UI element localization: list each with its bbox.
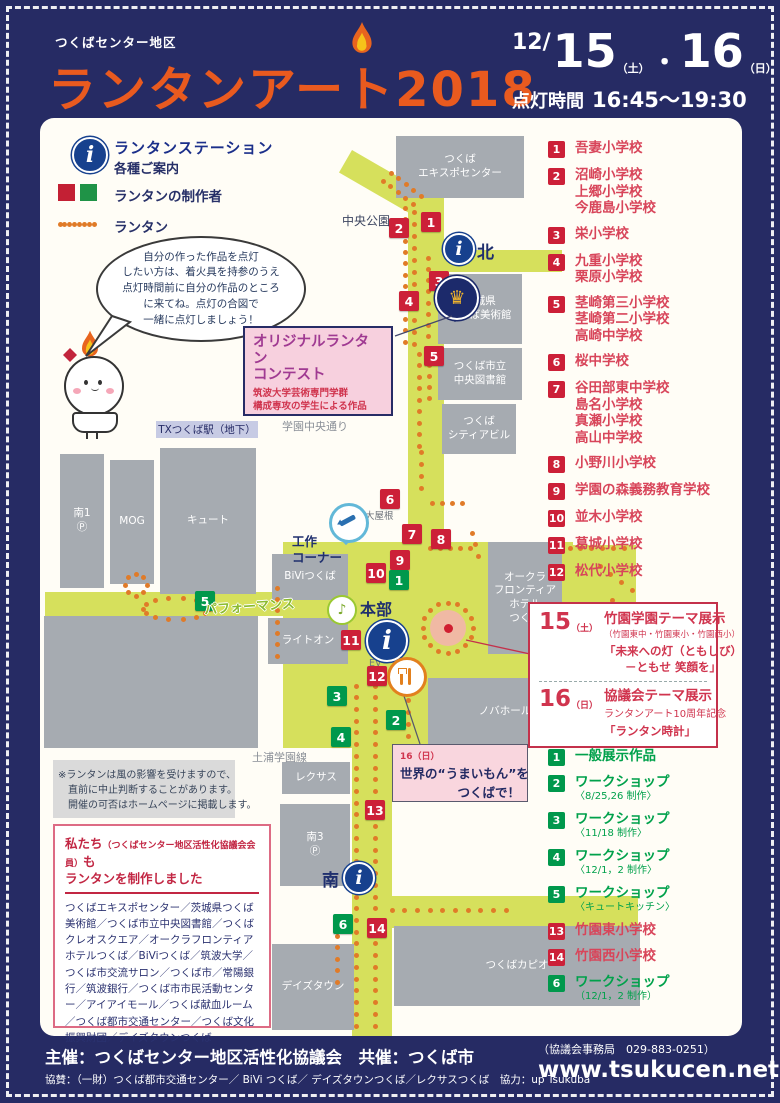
lantern-dot [403, 261, 408, 266]
building: つくば シティアビル [442, 404, 516, 454]
day16-quote: 「ランタン時計」 [604, 723, 726, 739]
makers-divider [65, 892, 259, 894]
school-name: 九重小学校 [575, 253, 643, 270]
lantern-dot [412, 258, 417, 263]
umaimon-box: 16（日） 世界の“うまいもん”を つくばで！ [392, 744, 528, 802]
school-list-item: 3栄小学校 [548, 226, 740, 244]
workshop-sub: 〈12/1，2 制作〉 [575, 864, 670, 877]
workshop-list-item: 6ワークショップ（12/1，2 制作） [548, 974, 740, 1003]
lantern-dot [402, 908, 407, 913]
workshop-list-item: 13竹園東小学校 [548, 922, 740, 940]
lantern-dot [428, 908, 433, 913]
fork-head [398, 668, 407, 674]
lantern-dot [412, 282, 417, 287]
lantern-dot [403, 206, 408, 211]
marker-red-9: 9 [390, 550, 410, 570]
workshop-sub: 〈キュートキッチン〉 [575, 901, 675, 914]
workshop-name: ワークショップ [575, 774, 670, 790]
school-name: 小野川小学校 [575, 455, 656, 472]
theme-day15-body: 竹園学園テーマ展示 （竹園東中・竹園東小・竹園西小） 「未来への灯（ともしび） … [604, 611, 742, 675]
theme-day16-num: 16（日） [539, 688, 598, 739]
lantern-dot [166, 596, 171, 601]
knife-bar [408, 668, 411, 685]
marker-red-8: 8 [431, 529, 451, 549]
marker-red-5: 5 [424, 346, 444, 366]
lantern-dot [275, 620, 280, 625]
lantern-dot [428, 643, 433, 648]
theme-day15: 15（土） 竹園学園テーマ展示 （竹園東中・竹園東小・竹園西小） 「未来への灯（… [539, 611, 707, 675]
lighting-time-label: 点灯時間 [512, 91, 584, 112]
lantern-dot [411, 202, 416, 207]
contest-sub-1: 筑波大学芸術専門学群 [253, 388, 348, 399]
lantern-dot [141, 575, 146, 580]
lantern-dot [354, 977, 359, 982]
lantern-dot [373, 988, 378, 993]
building-label: キュート [187, 514, 229, 528]
school-list-item: 2沼崎小学校上郷小学校今鹿島小学校 [548, 167, 740, 217]
lantern-clock-center [444, 624, 453, 633]
hq-label: 本部 [360, 596, 392, 620]
lantern-dot [412, 342, 417, 347]
school-list-item: 5茎崎第三小学校茎崎第二小学校高崎中学校 [548, 295, 740, 345]
school-badge-2: 2 [548, 168, 565, 185]
makers-body: つくばエキスポセンター／茨城県つくば美術館／つくば市立中央図書館／つくばクレオス… [65, 900, 259, 1046]
lantern-dot [450, 501, 455, 506]
school-list-item: 11葛城小学校 [548, 536, 740, 554]
lantern-dot [417, 363, 422, 368]
lantern-dot [419, 486, 424, 491]
lighting-time: 点灯時間16:45～19:30 [512, 84, 747, 114]
lantern-dot [419, 194, 424, 199]
lantern-dot [440, 908, 445, 913]
lantern-dot [404, 182, 409, 187]
lantern-dot [468, 546, 473, 551]
lantern-dot [354, 1012, 359, 1017]
lantern-dot [144, 602, 149, 607]
marker-green-1: 1 [389, 570, 409, 590]
mascot-eye [84, 380, 88, 385]
workshop-body: 竹園東小学校 [575, 922, 656, 940]
lantern-dot [412, 318, 417, 323]
umaimon-date: 16（日） [400, 749, 520, 762]
makers-title-line2: ランタンを制作しました [65, 871, 203, 886]
workshop-name: ワークショップ [575, 885, 675, 901]
building: 南1 Ⓟ [60, 454, 104, 588]
school-list-item: 9学園の森義務教育学校 [548, 482, 740, 500]
lantern-dot [373, 789, 378, 794]
building-label: つくば市立 中央図書館 [454, 360, 507, 387]
mascot-eye [98, 380, 102, 385]
workshop-body: ワークショップ〈8/25,26 制作〉 [575, 774, 670, 803]
mascot-character [50, 330, 146, 455]
lantern-dot [275, 654, 280, 659]
bubble-line: 自分の作った作品を点灯 [143, 250, 259, 266]
lantern-dot [426, 256, 431, 261]
building-label: つくば シティアビル [448, 415, 510, 442]
school-badge-7: 7 [548, 381, 565, 398]
school-name: 谷田部東中学校 [575, 380, 670, 397]
weather-note: ※ランタンは風の影響を受けますので、 直前に中止判断することがあります。 開催の… [58, 768, 257, 813]
workshop-sub: （12/1，2 制作） [575, 990, 670, 1003]
school-name: 栗原小学校 [575, 269, 643, 286]
lantern-dot [403, 196, 408, 201]
lantern-dot [421, 626, 426, 631]
day15-number: 15 [539, 609, 571, 635]
theme-day16: 16（日） 協議会テーマ展示 ランタンアート10周年記念 「ランタン時計」 [539, 688, 707, 739]
note-line: 開催の可否はホームページに掲載します。 [58, 798, 257, 813]
workshop-list-item: 3ワークショップ〈11/18 制作〉 [548, 811, 740, 840]
school-name: 吾妻小学校 [575, 140, 643, 157]
lighting-time-value: 16:45～19:30 [592, 88, 747, 112]
school-badge-1: 1 [548, 141, 565, 158]
lantern-dot [373, 695, 378, 700]
building-label: つくば エキスポセンター [418, 153, 502, 180]
lantern-dot [473, 542, 478, 547]
lantern-dot [275, 631, 280, 636]
info-icon-hq: i [366, 620, 408, 662]
makers-box: 私たち（つくばセンター地区活性化協議会会員）もランタンを制作しました つくばエキ… [53, 824, 271, 1028]
workshop-name: 竹園東小学校 [575, 922, 656, 938]
workshop-badge-2: 2 [548, 775, 565, 792]
bubble-line: 点灯時間前に自分の作品のところ [122, 281, 280, 297]
lantern-dot [153, 615, 158, 620]
food-icon [387, 657, 427, 697]
lantern-dot [373, 777, 378, 782]
marker-red-12: 12 [367, 666, 387, 686]
lantern-dot [403, 250, 408, 255]
lantern-dot [354, 742, 359, 747]
building: デイズタウン [272, 944, 354, 1030]
lantern-dot [406, 722, 411, 727]
workshop-list-item: 1一般展示作品 [548, 748, 740, 766]
school-names: 吾妻小学校 [575, 140, 643, 158]
school-name: 葛城小学校 [575, 536, 643, 553]
mascot-body [72, 412, 118, 433]
lantern-dot [373, 859, 378, 864]
lantern-dot [412, 234, 417, 239]
crown-glyph: ♛ [448, 289, 465, 308]
workshop-list-item: 2ワークショップ〈8/25,26 制作〉 [548, 774, 740, 803]
school-badge-4: 4 [548, 254, 565, 271]
note-line: 直前に中止判断することがあります。 [58, 783, 257, 798]
lantern-dot [430, 501, 435, 506]
marker-red-13: 13 [365, 800, 385, 820]
workshop-list-item: 4ワークショップ〈12/1，2 制作〉 [548, 848, 740, 877]
lantern-dot [396, 190, 401, 195]
footer-url: www.tsukucen.net [538, 1057, 779, 1083]
date-day2: 16 [680, 28, 744, 74]
lantern-dot [417, 421, 422, 426]
building-label: 南3 Ⓟ [306, 831, 323, 858]
building [44, 616, 258, 748]
contest-sub: 筑波大学芸術専門学群構成専攻の学生による作品 [253, 388, 383, 414]
lantern-dot [466, 908, 471, 913]
school-names: 桜中学校 [575, 353, 629, 371]
mascot-cheek [73, 388, 81, 394]
lantern-dot [403, 273, 408, 278]
lantern-dot [354, 906, 359, 911]
lantern-dot [427, 374, 432, 379]
lantern-dot [373, 977, 378, 982]
lantern-dot [455, 649, 460, 654]
lantern-dot [126, 590, 131, 595]
mascot-mouth [91, 385, 99, 391]
lantern-dot [134, 594, 139, 599]
date-separator: ・ [652, 42, 678, 79]
umaimon-line2: つくばで！ [400, 782, 520, 801]
bubble-line: 一緒に点灯しましょう！ [143, 313, 259, 329]
lantern-dot [335, 934, 340, 939]
workshop-list-item: 5ワークショップ〈キュートキッチン〉 [548, 885, 740, 914]
marker-green-4: 4 [331, 727, 351, 747]
mascot-leg [86, 431, 88, 439]
building: MOG [110, 460, 154, 584]
lantern-dot [354, 707, 359, 712]
lantern-dot [373, 766, 378, 771]
tx-station-label: TXつくば駅（地下） [156, 421, 258, 438]
marker-red-14: 14 [367, 918, 387, 938]
school-names: 学園の森義務教育学校 [575, 482, 710, 500]
workshop-body: ワークショップ〈キュートキッチン〉 [575, 885, 675, 914]
lantern-dot [453, 908, 458, 913]
footer-office-phone: （協議会事務局 029-883-0251） [538, 1041, 715, 1057]
building: レクサス [282, 762, 350, 794]
lantern-dot [460, 501, 465, 506]
lantern-dot [428, 608, 433, 613]
lantern-dot [373, 824, 378, 829]
marker-green-3: 3 [327, 686, 347, 706]
lantern-dot [427, 385, 432, 390]
lantern-dot [126, 575, 131, 580]
lantern-dot [427, 396, 432, 401]
lantern-dot [403, 239, 408, 244]
workshop-body: ワークショップ（12/1，2 制作） [575, 974, 670, 1003]
umaimon-line1: 世界の“うまいもん”を [400, 763, 520, 782]
school-list-item: 4九重小学校栗原小学校 [548, 253, 740, 286]
event-title-text: ランタンアート [48, 62, 395, 118]
lantern-dot [390, 908, 395, 913]
lantern-dot [354, 953, 359, 958]
legend-makers-label: ランタンの制作者 [114, 185, 222, 205]
building-label: ノバホール [479, 705, 532, 719]
school-name: 真瀬小学校 [575, 413, 670, 430]
info-icon-legend: i [72, 137, 108, 173]
lantern-dot [403, 317, 408, 322]
school-name: 学園の森義務教育学校 [575, 482, 710, 499]
lantern-dot [406, 698, 411, 703]
lantern-dot [417, 386, 422, 391]
lantern-dot [123, 583, 128, 588]
lantern-dot [412, 222, 417, 227]
school-badge-8: 8 [548, 456, 565, 473]
school-list-item: 10並木小学校 [548, 509, 740, 527]
date-month: 12/ [512, 30, 551, 55]
craft-corner-label: 工作 コーナー [292, 534, 342, 565]
map-label: 学園中央通り [282, 418, 348, 434]
lantern-dot [446, 601, 451, 606]
legend-red-square [58, 184, 75, 201]
lantern-dot [470, 531, 475, 536]
marker-green-2: 2 [386, 710, 406, 730]
school-names: 葛城小学校 [575, 536, 643, 554]
school-name: 松代小学校 [575, 563, 643, 580]
lantern-dot [446, 651, 451, 656]
contest-box: オリジナルランタン コンテスト 筑波大学芸術専門学群構成専攻の学生による作品 [243, 326, 393, 416]
lantern-dot [440, 501, 445, 506]
school-list-item: 12松代小学校 [548, 563, 740, 581]
school-badge-10: 10 [548, 510, 565, 527]
date-day1-weekday: （土） [617, 60, 650, 76]
lantern-dot [354, 801, 359, 806]
theme-exhibit-box: 15（土） 竹園学園テーマ展示 （竹園東中・竹園東小・竹園西小） 「未来への灯（… [528, 602, 718, 748]
school-badge-6: 6 [548, 354, 565, 371]
theme-divider [539, 681, 707, 682]
workshop-body: ワークショップ〈12/1，2 制作〉 [575, 848, 670, 877]
lantern-dot [471, 626, 476, 631]
day15-weekday: （土） [571, 624, 598, 634]
workshop-list-item: 14竹園西小学校 [548, 948, 740, 966]
workshop-badge-3: 3 [548, 812, 565, 829]
lantern-dot [412, 330, 417, 335]
lantern-dot [354, 789, 359, 794]
building: つくば市立 中央図書館 [438, 348, 522, 400]
building: キュート [160, 448, 256, 594]
lantern-dot [354, 777, 359, 782]
lantern-dot [373, 836, 378, 841]
lantern-dot [141, 607, 146, 612]
lantern-dot [412, 246, 417, 251]
workshop-name: 一般展示作品 [575, 748, 656, 764]
workshop-name: ワークショップ [575, 974, 670, 990]
workshop-badge-1: 1 [548, 749, 565, 766]
lantern-dot [415, 908, 420, 913]
lantern-dot [411, 188, 416, 193]
lantern-dot [426, 334, 431, 339]
marker-red-7: 7 [402, 524, 422, 544]
note-line: ※ランタンは風の影響を受けますので、 [58, 768, 257, 783]
lantern-dot [145, 583, 150, 588]
lantern-dot [354, 1000, 359, 1005]
candle-flame-icon [352, 22, 372, 58]
school-list-item: 7谷田部東中学校島名小学校真瀬小学校高山中学校 [548, 380, 740, 446]
lantern-dot [373, 953, 378, 958]
lantern-dot [426, 312, 431, 317]
day16-number: 16 [539, 686, 571, 712]
workshop-name: ワークショップ [575, 811, 670, 827]
day15-quote1: 「未来への灯（ともしび） [604, 643, 742, 659]
contest-title-2: コンテスト [253, 367, 383, 384]
mascot-cheek [106, 388, 114, 394]
lantern-dot [373, 742, 378, 747]
lantern-dot [403, 284, 408, 289]
footer-sponsors: 協賛：（一財）つくば都市交通センター／ BiVi つくば／ デイズタウンつくば／… [45, 1072, 590, 1087]
school-name: 茎崎第二小学校 [575, 311, 670, 328]
lantern-dot [275, 642, 280, 647]
lantern-dot [373, 1024, 378, 1029]
day15-title: 竹園学園テーマ展示 [604, 611, 742, 627]
date-day2-weekday: （日） [744, 60, 777, 76]
lantern-dot [354, 848, 359, 853]
marker-green-6: 6 [333, 914, 353, 934]
school-name: 栄小学校 [575, 226, 629, 243]
theme-day15-num: 15（土） [539, 611, 598, 675]
contest-sub-2: 構成専攻の学生による作品 [253, 401, 367, 412]
lantern-dot [381, 179, 386, 184]
lantern-dot [354, 754, 359, 759]
mascot-bow-right [70, 348, 84, 362]
lantern-dot [403, 328, 408, 333]
lantern-dot [134, 572, 139, 577]
school-names: 小野川小学校 [575, 455, 656, 473]
poster: つくばセンター地区 ランタンアート2018 12/ 15 （土） ・ 16 （日… [0, 0, 780, 1103]
school-names: 茎崎第三小学校茎崎第二小学校高崎中学校 [575, 295, 670, 345]
lantern-dot [153, 598, 158, 603]
school-list: 1吾妻小学校2沼崎小学校上郷小学校今鹿島小学校3栄小学校4九重小学校栗原小学校5… [548, 140, 740, 590]
school-list-item: 6桜中学校 [548, 353, 740, 371]
lantern-dot [335, 957, 340, 962]
bubble-line: に来てね。点灯の合図で [143, 297, 259, 313]
marker-red-10: 10 [366, 563, 386, 583]
workshop-sub: 〈8/25,26 制作〉 [575, 790, 670, 803]
lantern-dot [504, 908, 509, 913]
event-dates: 12/ 15 （土） ・ 16 （日） [512, 28, 777, 79]
makers-title-mo: も [83, 854, 96, 869]
makers-title-main: 私たち [65, 836, 103, 851]
building-label: つくばカピオ [486, 959, 549, 973]
building-label: 南1 Ⓟ [73, 507, 90, 534]
lantern-dot [417, 409, 422, 414]
workshop-body: ワークショップ〈11/18 制作〉 [575, 811, 670, 840]
north-label: 北 [477, 238, 494, 263]
school-name: 茎崎第三小学校 [575, 295, 670, 312]
lantern-dot [354, 836, 359, 841]
lantern-dot [373, 1000, 378, 1005]
lantern-dot [354, 730, 359, 735]
lantern-dot [417, 398, 422, 403]
workshop-body: 竹園西小学校 [575, 948, 656, 966]
lantern-dot [373, 730, 378, 735]
lantern-dot [373, 965, 378, 970]
theme-day16-body: 協議会テーマ展示 ランタンアート10周年記念 「ランタン時計」 [604, 688, 726, 739]
lantern-dot [476, 554, 481, 559]
school-list-item: 8小野川小学校 [548, 455, 740, 473]
day16-sub: ランタンアート10周年記念 [604, 705, 726, 720]
day15-quote2: －ともせ 笑顔を」 [604, 659, 742, 675]
workshop-sub: 〈11/18 制作〉 [575, 827, 670, 840]
building-label: BiViつくば [284, 570, 336, 584]
workshop-badge-4: 4 [548, 849, 565, 866]
lantern-dot [403, 340, 408, 345]
lantern-dot [92, 222, 97, 227]
school-names: 谷田部東中学校島名小学校真瀬小学校高山中学校 [575, 380, 670, 446]
map-label: 土浦学園線 [252, 749, 307, 765]
school-badge-11: 11 [548, 537, 565, 554]
bubble-line: したい方は、着火具を持参のうえ [122, 265, 280, 281]
museum-crown-icon: ♛ [435, 276, 479, 320]
lantern-dot [373, 719, 378, 724]
lantern-dot [412, 210, 417, 215]
marker-red-4: 4 [399, 291, 419, 311]
building-label: MOG [119, 515, 144, 529]
lantern-dot [354, 695, 359, 700]
workshop-body: 一般展示作品 [575, 748, 656, 766]
school-name: 上郷小学校 [575, 184, 656, 201]
workshop-badge-5: 5 [548, 886, 565, 903]
legend-lantern-label: ランタン [114, 216, 168, 236]
school-name: 沼崎小学校 [575, 167, 656, 184]
lantern-dot [354, 918, 359, 923]
marker-red-2: 2 [389, 218, 409, 238]
